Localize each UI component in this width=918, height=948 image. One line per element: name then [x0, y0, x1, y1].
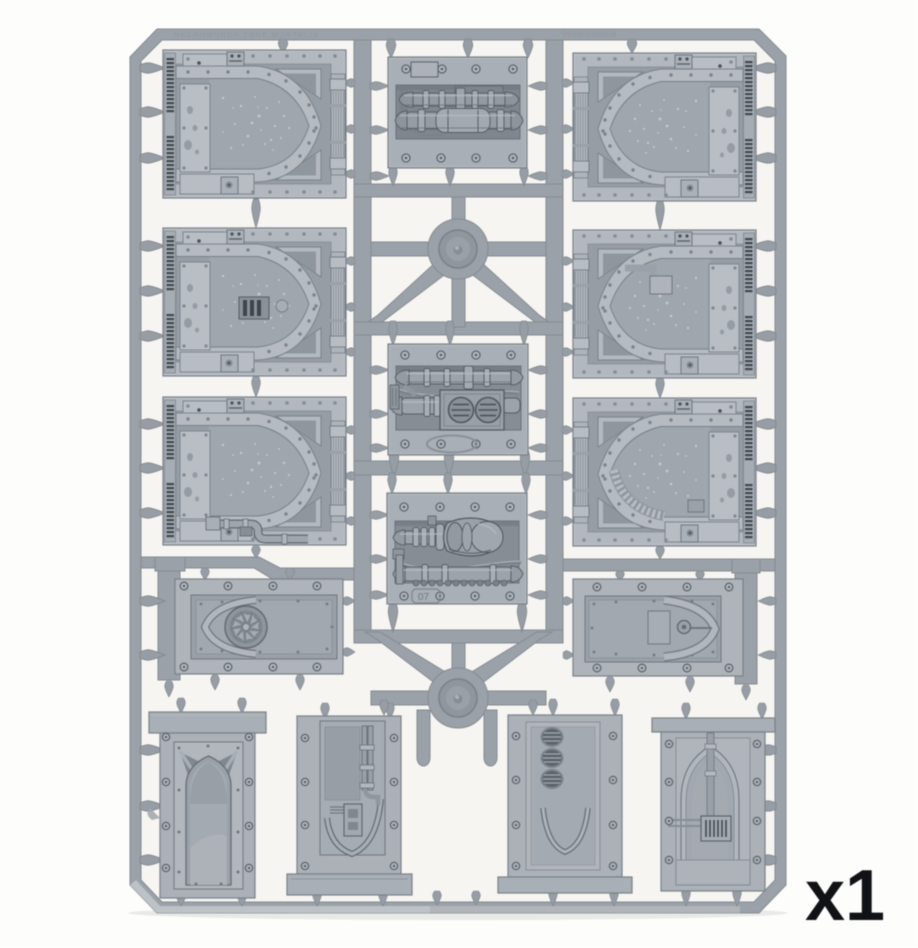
svg-text:99390599008: 99390599008 — [562, 30, 616, 39]
svg-text:NECROMUNDA ZONE MORTALIS: NECROMUNDA ZONE MORTALIS — [174, 32, 319, 39]
svg-text:07: 07 — [418, 592, 430, 603]
svg-text:x1: x1 — [805, 856, 885, 936]
